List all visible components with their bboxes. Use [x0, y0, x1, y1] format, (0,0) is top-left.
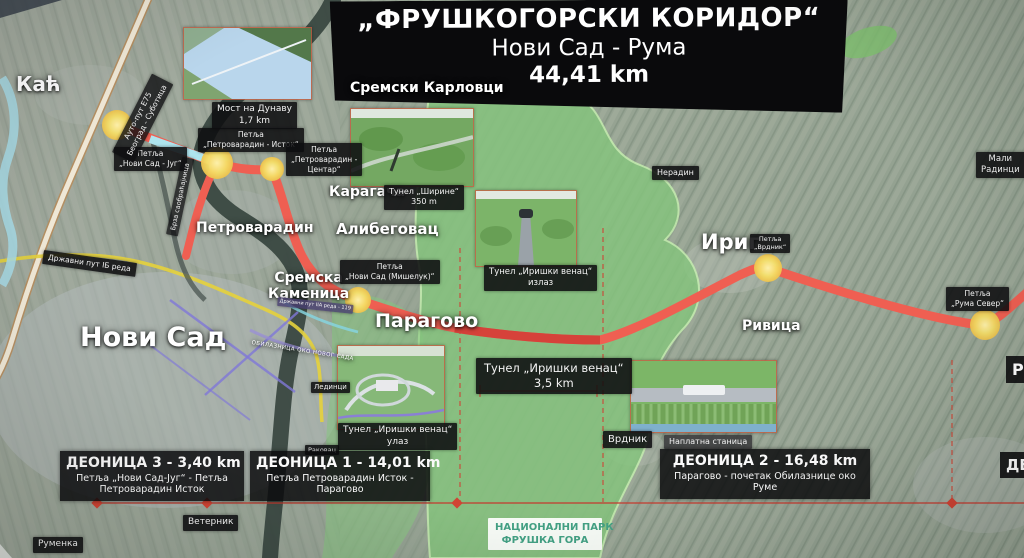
section-1-box: ДЕОНИЦА 1 - 14,01 km Петља Петроварадин …	[250, 451, 430, 501]
park-label-line: НАЦИОНАЛНИ ПАРК	[495, 521, 595, 534]
place-paragovo: Парагово	[375, 310, 478, 332]
label-neradin: Нерадин	[652, 166, 699, 180]
label-line: Мост на Дунаву	[217, 104, 292, 116]
label-line: „Петроварадин -	[291, 155, 357, 165]
label-line: „Врдник“	[754, 243, 786, 251]
label-state-road-ib: Државни пут IБ реда	[42, 250, 137, 277]
park-label-line: ФРУШКА ГОРА	[495, 534, 595, 547]
section-sub: Петља „Нови Сад-Југ“ - Петља	[66, 473, 238, 485]
place-kac: Каћ	[16, 72, 61, 96]
edge-label-top: Р	[1006, 356, 1024, 383]
label-line: „Петроварадин - Исток“	[203, 140, 299, 150]
section-title: ДЕОНИЦА 3 - 3,40 km	[66, 455, 238, 473]
label-obilaznica: ОБИЛАЗНИЦА ОКО НОВОГ САДА	[251, 340, 354, 362]
label-line: Тунел „Ширине“	[389, 187, 459, 197]
place-rivica: Ривица	[742, 318, 801, 334]
place-novi-sad: Нови Сад	[80, 322, 226, 353]
label-line: „Рума Север“	[951, 299, 1004, 309]
label-tunnel-sirine: Тунел „Ширине“ 350 m	[384, 185, 464, 210]
label-toll-station: Наплатна станица	[664, 435, 752, 449]
section-title: ДЕОНИЦА 2 - 16,48 km	[666, 453, 864, 471]
label-tunnel-iriski-venac-entrance: Тунел „Иришки венац“ улаз	[338, 423, 457, 450]
label-line: „Нови Сад (Мишелук)“	[345, 272, 435, 282]
section-sub: Парагово - почетак Обилазнице око	[666, 471, 864, 483]
label-vrdnik: Врдник	[603, 431, 652, 448]
label-rumenka: Руменка	[33, 537, 83, 553]
place-sremski-karlovci: Сремски Карловци	[350, 80, 504, 96]
title-board: „ФРУШКОГОРСКИ КОРИДОР“ Нови Сад - Рума 4…	[330, 0, 849, 115]
label-petlja-ruma-sever: Петља „Рума Север“	[946, 287, 1009, 311]
label-line: 350 m	[389, 197, 459, 207]
corridor-map-board: „ФРУШКОГОРСКИ КОРИДОР“ Нови Сад - Рума 4…	[0, 0, 1024, 558]
section-2-box: ДЕОНИЦА 2 - 16,48 km Парагово - почетак …	[660, 449, 870, 499]
label-line: Тунел „Иришки венац“	[484, 361, 624, 376]
label-line: 3,5 km	[484, 376, 624, 391]
section-sub: Петроварадин Исток	[66, 484, 238, 496]
label-petlja-miseluk: Петља „Нови Сад (Мишелук)“	[340, 260, 440, 284]
place-line: Сремска	[268, 270, 349, 286]
label-line: 1,7 km	[217, 116, 292, 128]
edge-label-bottom: ДЕ	[1000, 452, 1024, 478]
section-title: ДЕОНИЦА 1 - 14,01 km	[256, 455, 424, 473]
label-danube-bridge: Мост на Дунаву 1,7 km	[212, 102, 297, 129]
label-line: Центар“	[291, 165, 357, 175]
place-petrovaradin: Петроварадин	[196, 220, 314, 236]
label-tunnel-iriski-venac-exit: Тунел „Иришки венац“ излаз	[484, 265, 597, 291]
label-line: улаз	[343, 437, 452, 449]
label-line: Петља	[203, 130, 299, 140]
corridor-title: „ФРУШКОГОРСКИ КОРИДОР“	[330, 3, 848, 36]
section-sub: Петља Петроварадин Исток -	[256, 473, 424, 485]
label-petlja-vrdnik: Петља „Врдник“	[750, 234, 790, 253]
section-3-box: ДЕОНИЦА 3 - 3,40 km Петља „Нови Сад-Југ“…	[60, 451, 244, 501]
label-veternik: Ветерник	[183, 515, 238, 531]
label-petlja-petrovaradin-centar: Петља „Петроварадин - Центар“	[286, 143, 362, 176]
label-line: Петља	[754, 235, 786, 243]
label-line: Тунел „Иришки венац“	[343, 425, 452, 437]
labels-overlay: „ФРУШКОГОРСКИ КОРИДОР“ Нови Сад - Рума 4…	[0, 0, 1024, 558]
national-park-label: НАЦИОНАЛНИ ПАРК ФРУШКА ГОРА	[488, 518, 602, 550]
corridor-endpoints: Нови Сад - Рума	[330, 34, 848, 63]
label-line: Петља	[291, 145, 357, 155]
label-tunnel-iriski-venac: Тунел „Иришки венац“ 3,5 km	[476, 358, 632, 394]
label-line: Петља	[345, 262, 435, 272]
label-line: Тунел „Иришки венац“	[489, 267, 592, 278]
label-mali-radinci: Мали Радинци	[976, 152, 1024, 178]
label-line: Петља	[951, 289, 1004, 299]
label-line: излаз	[489, 278, 592, 289]
section-sub: Парагово	[256, 484, 424, 496]
label-ledinci: Лединци	[311, 382, 350, 393]
place-alibegovac: Алибеговац	[336, 220, 439, 238]
section-sub: Руме	[666, 482, 864, 494]
